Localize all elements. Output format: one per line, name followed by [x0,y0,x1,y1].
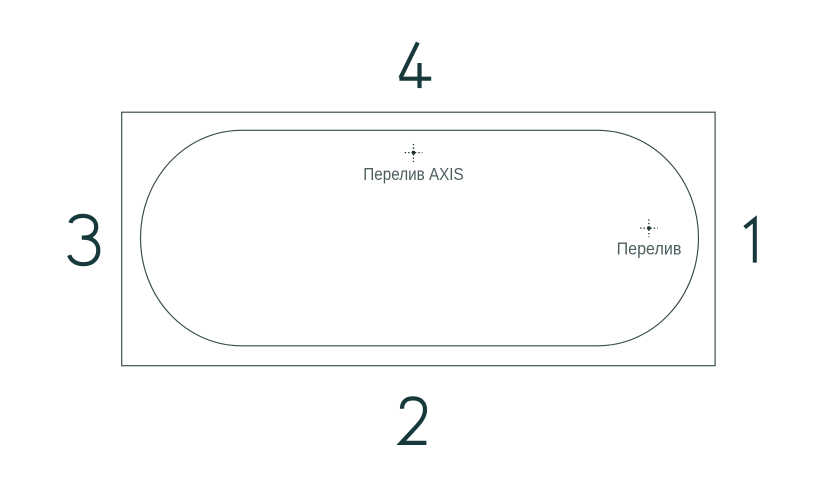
svg-text:Перелив AXIS: Перелив AXIS [363,165,463,184]
svg-text:Перелив: Перелив [617,239,682,259]
